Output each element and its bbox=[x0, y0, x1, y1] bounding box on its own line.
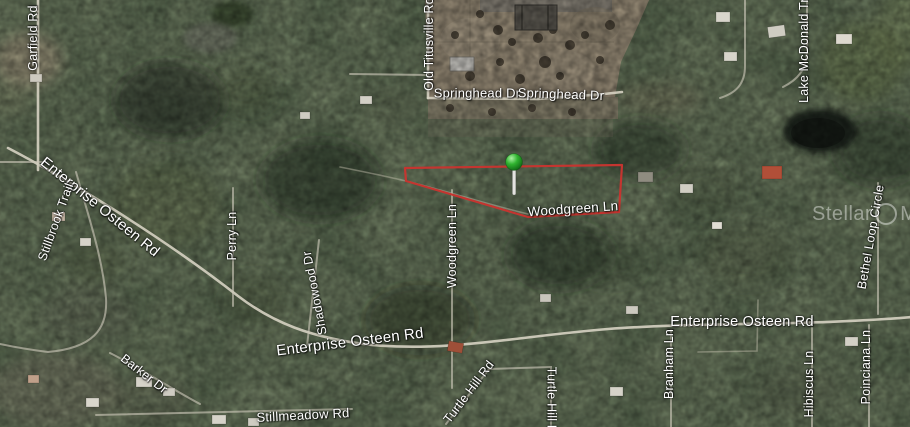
pin-ball bbox=[506, 154, 523, 171]
map-imagery bbox=[0, 0, 910, 427]
grain-texture bbox=[0, 0, 910, 427]
satellite-map[interactable]: Garfield Rd Old Titusville Rd Springhead… bbox=[0, 0, 910, 427]
pin-stem bbox=[512, 168, 515, 195]
